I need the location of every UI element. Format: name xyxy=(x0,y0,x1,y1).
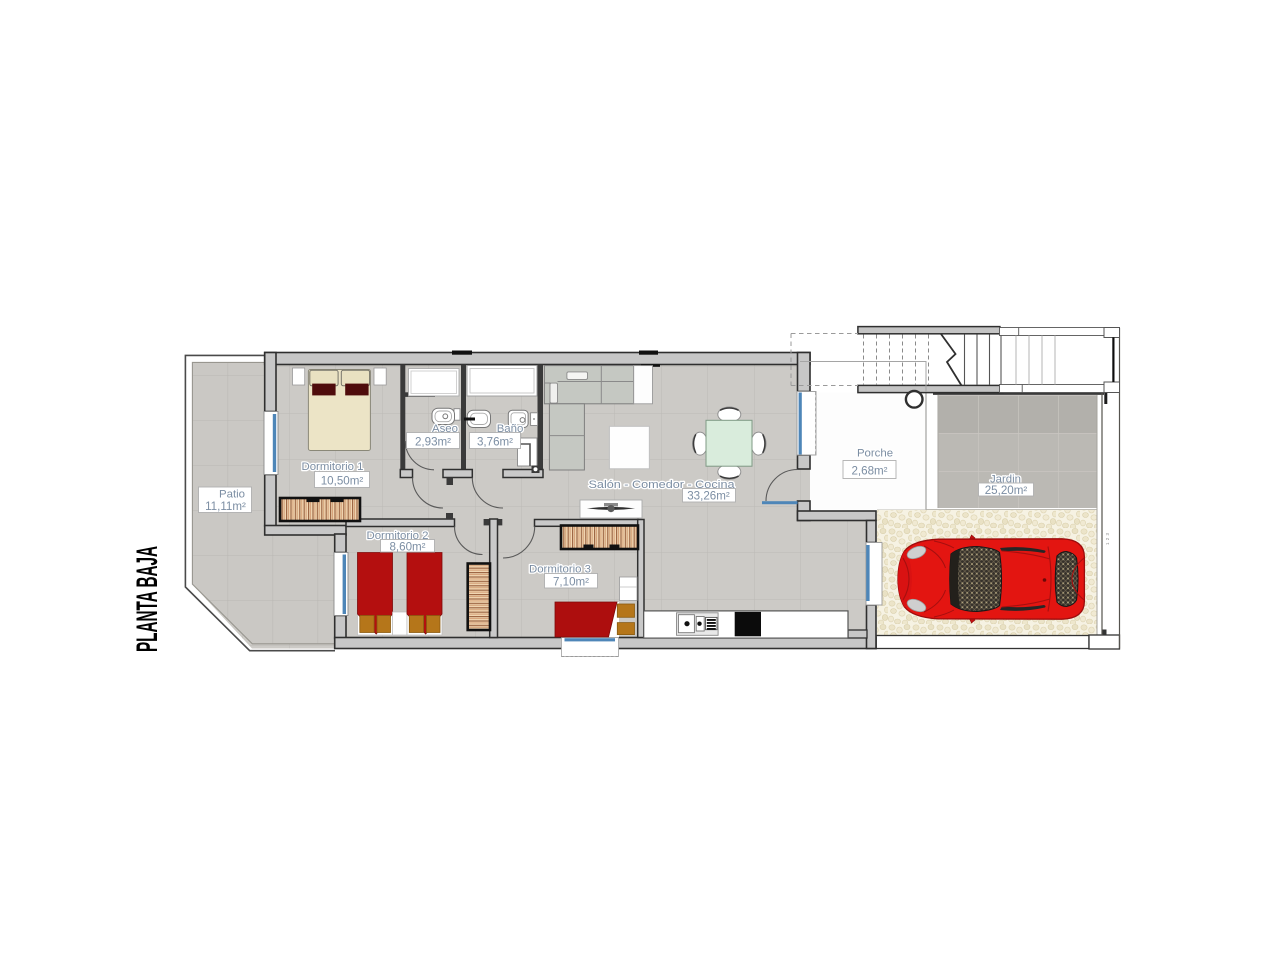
svg-text:2,93m²: 2,93m² xyxy=(415,436,451,449)
svg-text:33,26m²: 33,26m² xyxy=(687,490,730,503)
svg-text:10,50m²: 10,50m² xyxy=(321,475,364,488)
svg-text:PLANTA BAJA: PLANTA BAJA xyxy=(131,546,164,652)
svg-text:2,68m²: 2,68m² xyxy=(851,465,887,478)
svg-text:Patio: Patio xyxy=(219,489,245,501)
svg-text:25,20m²: 25,20m² xyxy=(985,484,1028,497)
svg-text:3,76m²: 3,76m² xyxy=(477,436,513,449)
svg-text:7,10m²: 7,10m² xyxy=(553,576,589,589)
svg-text:8,60m²: 8,60m² xyxy=(389,541,425,554)
svg-text:Porche: Porche xyxy=(857,448,893,460)
svg-text:1 2 3: 1 2 3 xyxy=(1105,532,1110,545)
svg-text:11,11m²: 11,11m² xyxy=(205,500,246,513)
